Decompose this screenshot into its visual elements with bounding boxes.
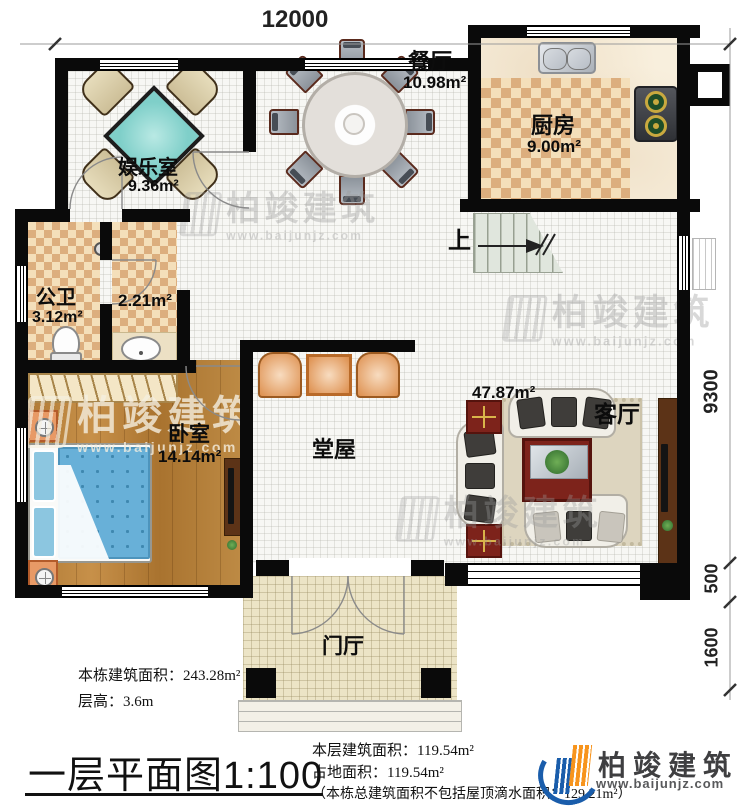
dining-chair <box>405 109 435 135</box>
entry-steps <box>238 700 462 732</box>
sofa-bottom <box>524 494 628 548</box>
hall-chair <box>258 352 302 398</box>
wall <box>256 560 289 576</box>
wall <box>15 360 196 373</box>
window <box>527 25 630 38</box>
dining-chair <box>339 175 365 205</box>
window <box>15 266 28 322</box>
living-tv <box>661 444 668 512</box>
room-area-kitchen: 9.00m² <box>527 138 581 156</box>
room-area-bedroom: 14.14m² <box>158 448 221 466</box>
room-label-hall: 堂屋 <box>312 438 356 461</box>
dining-table-center <box>343 113 365 135</box>
building-area-note: 本栋建筑面积：243.28m² <box>78 664 240 685</box>
window <box>100 58 178 71</box>
porch-column <box>421 668 451 698</box>
hall-table <box>306 354 352 396</box>
window <box>677 236 690 290</box>
floor-area-note: 本层建筑面积：119.54m² <box>312 739 474 760</box>
dimension-top: 12000 <box>245 6 345 34</box>
window <box>15 428 28 502</box>
nightstand <box>28 410 58 442</box>
wall <box>177 290 190 362</box>
window-sill <box>692 238 716 290</box>
end-table <box>466 400 502 434</box>
title-underline <box>25 793 323 796</box>
hall-chair <box>356 352 400 398</box>
flue-box <box>690 64 730 106</box>
wall <box>55 58 68 222</box>
room-label-kitchen: 厨房 <box>531 114 575 137</box>
floor-height-note: 层高：3.6m <box>78 690 153 711</box>
window <box>468 563 640 586</box>
wash-basin <box>121 336 161 362</box>
wall <box>100 222 112 260</box>
wall <box>243 58 256 152</box>
land-area-note: 占地面积：119.54m² <box>312 761 444 782</box>
plan-title-text: 一层平面图 <box>28 755 223 797</box>
room-area-entertainment: 9.36m² <box>128 179 179 196</box>
brand-logo-icon <box>543 740 597 802</box>
kitchen-sink <box>538 42 596 74</box>
end-table <box>466 524 502 558</box>
plan-title: 一层平面图1:100 <box>28 744 323 799</box>
pillow <box>32 506 56 558</box>
wall <box>411 560 444 576</box>
room-label-dining: 餐厅 <box>408 50 452 73</box>
dining-chair <box>269 109 299 135</box>
foyer-door-opening <box>289 558 411 576</box>
stairs-up-label: 上 <box>448 228 471 252</box>
wardrobe <box>28 373 178 403</box>
dimension-right-1600: 1600 <box>702 623 723 673</box>
bedroom-tv <box>228 468 234 524</box>
room-area-dining: 10.98m² <box>403 74 466 92</box>
floor-plan-canvas: 柏竣建筑 www.baijunjz.com 柏竣建筑 www.baijunjz.… <box>0 0 750 807</box>
room-label-foyer: 门厅 <box>322 636 364 658</box>
wall <box>677 25 690 600</box>
room-label-living: 客厅 <box>594 402 640 426</box>
room-label-entertainment: 娱乐室 <box>118 158 178 179</box>
room-area-bathroom: 3.12m² <box>32 310 83 327</box>
dimension-right-500: 500 <box>702 559 723 599</box>
room-area-living: 47.87m² <box>472 384 535 402</box>
porch-column <box>246 668 276 698</box>
wall <box>240 340 253 598</box>
plant-icon <box>227 540 237 550</box>
window <box>62 585 208 598</box>
stove <box>634 86 678 142</box>
wall <box>15 209 70 222</box>
wall <box>460 199 700 212</box>
plan-scale: 1:100 <box>223 755 323 797</box>
coffee-table-plant <box>545 450 569 474</box>
wall <box>640 563 690 600</box>
wall <box>253 340 415 352</box>
room-label-bathroom: 公卫 <box>36 288 76 309</box>
brand-url: www.baijunjz.com <box>596 776 724 791</box>
sofa-left <box>456 420 504 528</box>
wall <box>122 209 190 222</box>
dimension-right-9300: 9300 <box>701 362 724 422</box>
pillow <box>32 450 56 502</box>
room-label-bedroom: 卧室 <box>168 424 210 446</box>
wall <box>468 25 481 212</box>
wall <box>100 304 112 362</box>
room-area-washroom: 2.21m² <box>118 292 172 310</box>
plant-icon <box>662 520 673 531</box>
